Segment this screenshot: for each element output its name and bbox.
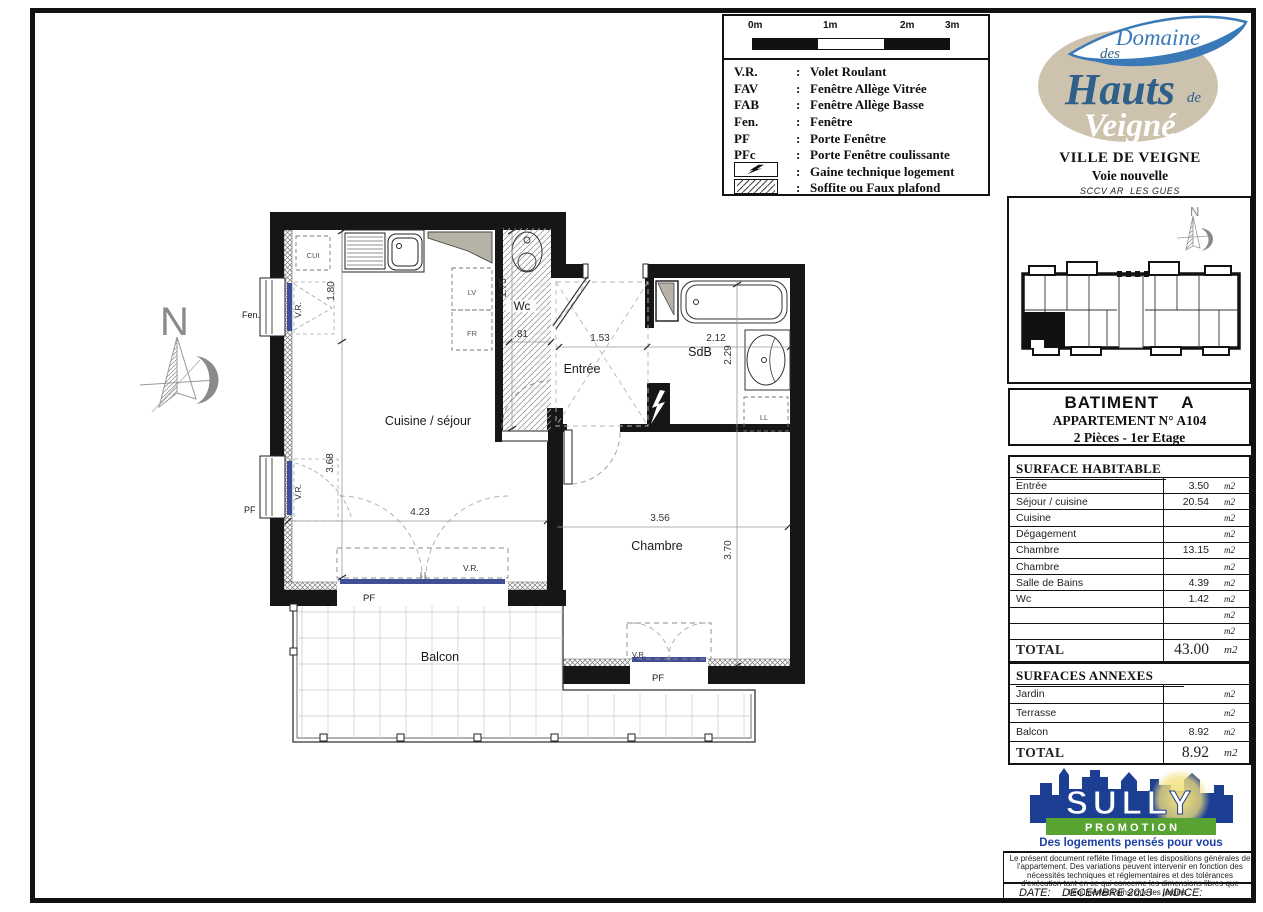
scale-label-0: 0m [748, 20, 762, 31]
table-total-row: TOTAL8.92m2 [1010, 741, 1249, 763]
title-block-footer: Le présent document refléte l'image et l… [1003, 851, 1256, 903]
site-plan-box: N [1007, 196, 1252, 384]
logo-domaine: Domaine [1115, 25, 1200, 50]
indice-label: INDICE: [1162, 887, 1202, 899]
logo-company: SCCV AR LES GUES [1008, 186, 1252, 196]
logo-street: Voie nouvelle [1008, 168, 1252, 184]
legend-entry: PFc:Porte Fenêtre coulissante [734, 147, 980, 164]
label-pf-left: PF [244, 505, 256, 515]
bedroom-door-leaf [564, 430, 572, 484]
legend-entry: FAV:Fenêtre Allège Vitrée [734, 81, 980, 98]
room-label-living: Cuisine / séjour [385, 414, 471, 428]
scale-label-2: 2m [900, 20, 914, 31]
table-row: Cuisinem2 [1010, 509, 1249, 525]
north-label: N [160, 300, 189, 344]
room-label-balcony: Balcon [421, 650, 459, 664]
table-row: Chambrem2 [1010, 558, 1249, 574]
table-row: m2 [1010, 623, 1249, 639]
room-label-bathroom: SdB [688, 345, 712, 359]
dim-0-81: .81 [514, 329, 528, 340]
floor-plan-sheet: 0m 1m 2m 3m V.R.:Volet Roulant FAV:Fenêt… [0, 0, 1263, 912]
apartment-number: APPARTEMENT N° A104 [1010, 413, 1249, 429]
dim-3-70: 3.70 [723, 540, 734, 560]
table-row: m2 [1010, 607, 1249, 623]
label-pf-bedroom: PF [652, 673, 664, 684]
dim-1-75: 1.75 [498, 278, 509, 298]
room-label-wc: Wc [514, 301, 531, 313]
legend-entry: :Gaine technique logement [734, 164, 980, 181]
dim-4-23: 4.23 [410, 507, 430, 518]
dim-1-80: 1.80 [326, 281, 337, 301]
surface-table: SURFACE HABITABLE Entrée3.50m2 Séjour / … [1008, 455, 1251, 663]
apartment-floor: 2 Pièces - 1er Etage [1010, 430, 1249, 446]
window-vr-blue [287, 283, 292, 331]
logo-hauts: Hauts [1064, 65, 1175, 114]
legend-entry: Fen.:Fenêtre [734, 114, 980, 131]
entry-zone [547, 278, 648, 426]
bedroom-french-door: V.R. PF [627, 623, 711, 686]
table-total-row: TOTAL43.00m2 [1010, 639, 1249, 661]
window-fen: Fen. V.R. [242, 278, 334, 336]
room-label-entry: Entrée [564, 362, 601, 376]
entry-door-leaf [553, 277, 587, 326]
label-vr-3: V.R. [463, 563, 479, 573]
room-label-bedroom: Chambre [631, 539, 682, 553]
kitchen-fixtures [342, 230, 492, 272]
apartment-title-box: BATIMENT A APPARTEMENT N° A104 2 Pièces … [1008, 388, 1251, 446]
site-plan-drawing: N [1009, 198, 1250, 382]
date-value: DECEMBRE 2013 [1062, 887, 1152, 899]
appliance-lv: LV [468, 288, 477, 297]
north-arrow: N [140, 300, 219, 412]
floor-plan-drawing: N [120, 190, 820, 765]
sully-name: SULLY [1066, 784, 1196, 821]
date-bar: DATE: DECEMBRE 2013 INDICE: [1004, 884, 1256, 903]
annex-table-title: SURFACES ANNEXES [1016, 668, 1184, 687]
scale-bar: 0m 1m 2m 3m [724, 16, 988, 60]
table-row: Chambre13.15m2 [1010, 542, 1249, 558]
scale-label-3: 3m [945, 20, 959, 31]
dim-2-12: 2.12 [706, 333, 726, 344]
dim-1-53: 1.53 [590, 333, 610, 344]
table-row: Wc1.42m2 [1010, 590, 1249, 606]
dim-2-29: 2.29 [723, 345, 734, 365]
label-pf-living: PF [363, 593, 375, 604]
table-row: Balcon8.92m2 [1010, 722, 1249, 741]
appliance-cui: CUI [307, 251, 320, 260]
table-row: Salle de Bains4.39m2 [1010, 574, 1249, 590]
logo-des: des [1100, 46, 1120, 62]
table-row: Entrée3.50m2 [1010, 477, 1249, 493]
logo-veigne: Veigné [1084, 108, 1177, 144]
label-vr-4: V.R. [632, 650, 646, 659]
legend-entry: FAB:Fenêtre Allège Basse [734, 97, 980, 114]
soffit-shape [428, 232, 492, 263]
annex-table: SURFACES ANNEXES Jardinm2 Terrassem2 Bal… [1008, 662, 1251, 765]
logo-de: de [1187, 90, 1202, 106]
date-label: DATE: [1019, 887, 1051, 899]
legend-entries: V.R.:Volet Roulant FAV:Fenêtre Allège Vi… [724, 60, 988, 197]
logo-graphic: Domaine des Hauts de Veigné [1008, 12, 1252, 144]
legend-entry: PF:Porte Fenêtre [734, 130, 980, 147]
scale-label-1: 1m [823, 20, 837, 31]
dim-3-68: 3.68 [325, 453, 336, 473]
washer-label: LL [760, 413, 768, 422]
scale-bar-segments [752, 38, 950, 50]
project-logo: Domaine des Hauts de Veigné VILLE DE VEI… [1008, 12, 1252, 192]
building-name: BATIMENT A [1010, 393, 1249, 413]
label-vr-1: V.R. [293, 302, 303, 318]
logo-city: VILLE DE VEIGNE [1008, 150, 1252, 167]
table-row: Séjour / cuisine20.54m2 [1010, 493, 1249, 509]
sully-logo: SULLY P R O M O T I O N Des logements pe… [1028, 761, 1235, 849]
table-row: Terrassem2 [1010, 703, 1249, 722]
table-row: Dégagementm2 [1010, 526, 1249, 542]
legend-box: 0m 1m 2m 3m V.R.:Volet Roulant FAV:Fenêt… [722, 14, 990, 196]
legend-entry: V.R.:Volet Roulant [734, 64, 980, 81]
label-vr-2: V.R. [293, 484, 303, 500]
surface-table-title: SURFACE HABITABLE [1016, 461, 1166, 480]
disclaimer-text: Le présent document refléte l'image et l… [1004, 851, 1256, 884]
label-fen: Fen. [242, 310, 260, 320]
sully-promotion: P R O M O T I O N [1085, 822, 1177, 834]
appliance-fr: FR [467, 329, 478, 338]
sully-tagline: Des logements pensés pour vous [1039, 837, 1222, 849]
site-north-label: N [1190, 204, 1199, 219]
dim-3-56: 3.56 [650, 513, 670, 524]
